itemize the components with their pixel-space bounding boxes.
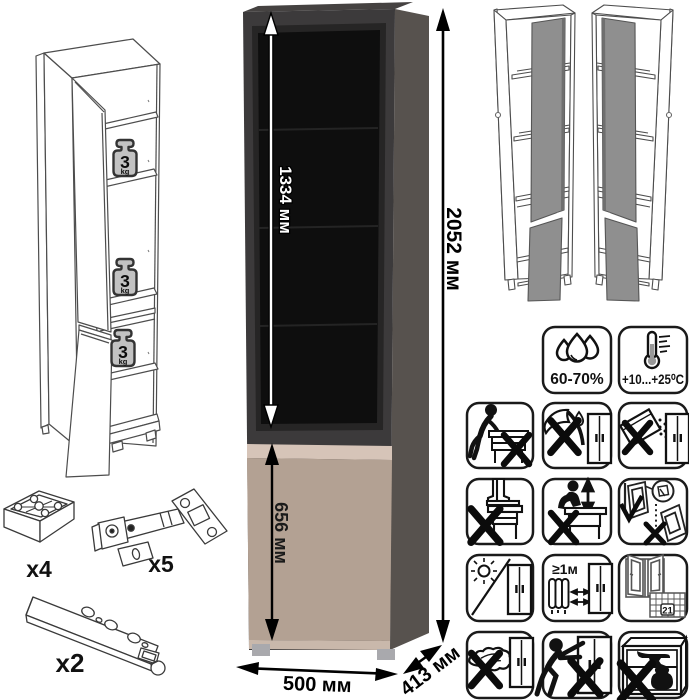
svg-text:+10...+25⁰C: +10...+25⁰C [622,372,684,387]
svg-text:x2: x2 [56,648,85,678]
svg-text:656 мм: 656 мм [271,502,291,564]
svg-text:x4: x4 [26,556,52,582]
svg-text:1334 мм: 1334 мм [276,166,295,234]
svg-text:2052 мм: 2052 мм [442,207,465,291]
svg-text:≥1м: ≥1м [552,561,578,577]
svg-text:x5: x5 [148,551,174,577]
svg-text:60-70%: 60-70% [550,371,604,388]
svg-text:21: 21 [662,606,673,617]
svg-text:500 мм: 500 мм [283,673,352,697]
